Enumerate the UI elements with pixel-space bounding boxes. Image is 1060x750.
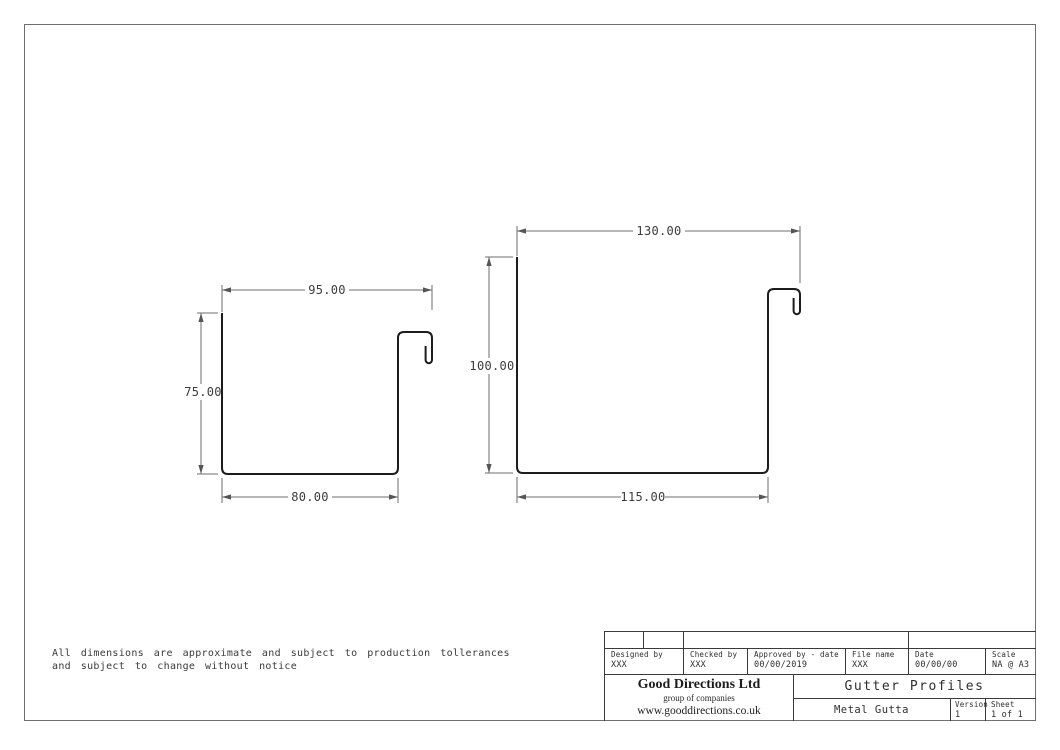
date-value: 00/00/00 (915, 660, 983, 671)
approved-by-cell: Approved by - date 00/00/2019 (754, 650, 844, 673)
right-profile-bottom-width-dim: 115.00 (620, 490, 665, 504)
drawing-title-cell: Gutter Profiles (793, 674, 1036, 698)
disclaimer-line-1: All dimensions are approximate and subje… (52, 648, 510, 661)
approved-by-label: Approved by - date (754, 650, 844, 660)
sheet-cell: Sheet 1 of 1 (991, 700, 1035, 720)
checked-by-value: XXX (690, 660, 745, 671)
left-gutter-profile-outline (222, 313, 432, 474)
company-tagline: group of companies (663, 693, 734, 704)
company-cell: Good Directions Ltd group of companies w… (605, 675, 793, 720)
disclaimer-line-2: and subject to change without notice (52, 661, 510, 674)
right-profile-height-dim: 100.00 (469, 359, 514, 373)
version-label: Version (955, 700, 985, 710)
left-profile-bottom-width-dim: 80.00 (291, 490, 329, 504)
checked-by-label: Checked by (690, 650, 745, 660)
disclaimer-note: All dimensions are approximate and subje… (52, 648, 510, 673)
checked-by-cell: Checked by XXX (690, 650, 745, 673)
date-label: Date (915, 650, 983, 660)
designed-by-label: Designed by (611, 650, 681, 660)
approved-by-value: 00/00/2019 (754, 660, 844, 671)
scale-label: Scale (992, 650, 1035, 660)
file-name-cell: File name XXX (852, 650, 906, 673)
version-cell: Version 1 (955, 700, 985, 720)
company-name: Good Directions Ltd (638, 677, 761, 693)
right-profile-top-width-dim: 130.00 (636, 224, 681, 238)
company-website: www.gooddirections.co.uk (637, 704, 761, 718)
right-gutter-profile-outline (517, 257, 800, 473)
version-value: 1 (955, 710, 985, 721)
designed-by-value: XXX (611, 660, 681, 671)
sheet-label: Sheet (991, 700, 1035, 710)
drawing-subtitle-cell: Metal Gutta (793, 698, 950, 721)
scale-value: NA @ A3 (992, 660, 1035, 671)
file-name-value: XXX (852, 660, 906, 671)
left-profile-top-width-dim: 95.00 (308, 283, 346, 297)
drawing-subtitle: Metal Gutta (834, 704, 909, 716)
sheet-value: 1 of 1 (991, 710, 1035, 721)
designed-by-cell: Designed by XXX (611, 650, 681, 673)
drawing-title: Gutter Profiles (845, 679, 985, 694)
date-cell: Date 00/00/00 (915, 650, 983, 673)
left-profile-height-dim: 75.00 (184, 385, 222, 399)
gutter-profile-drawing: 95.00 75.00 80.00 130.00 100.00 115.00 (0, 0, 1060, 750)
scale-cell: Scale NA @ A3 (992, 650, 1035, 673)
file-name-label: File name (852, 650, 906, 660)
